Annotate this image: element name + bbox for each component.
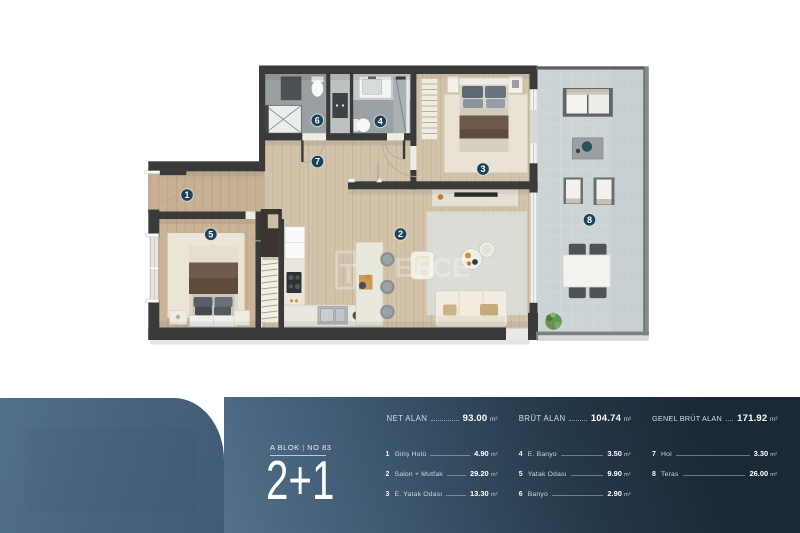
svg-text:3: 3 bbox=[480, 164, 485, 174]
svg-text:4: 4 bbox=[378, 117, 383, 127]
svg-text:T: T bbox=[340, 258, 357, 289]
svg-text:6: 6 bbox=[315, 116, 320, 126]
svg-text:2: 2 bbox=[398, 229, 403, 239]
svg-text:C: C bbox=[432, 252, 452, 283]
svg-text:7: 7 bbox=[315, 157, 320, 167]
svg-text:5: 5 bbox=[208, 230, 213, 240]
svg-text:E: E bbox=[452, 252, 471, 283]
svg-text:8: 8 bbox=[587, 215, 592, 225]
svg-text:1: 1 bbox=[184, 190, 189, 200]
svg-text:E: E bbox=[394, 252, 413, 283]
